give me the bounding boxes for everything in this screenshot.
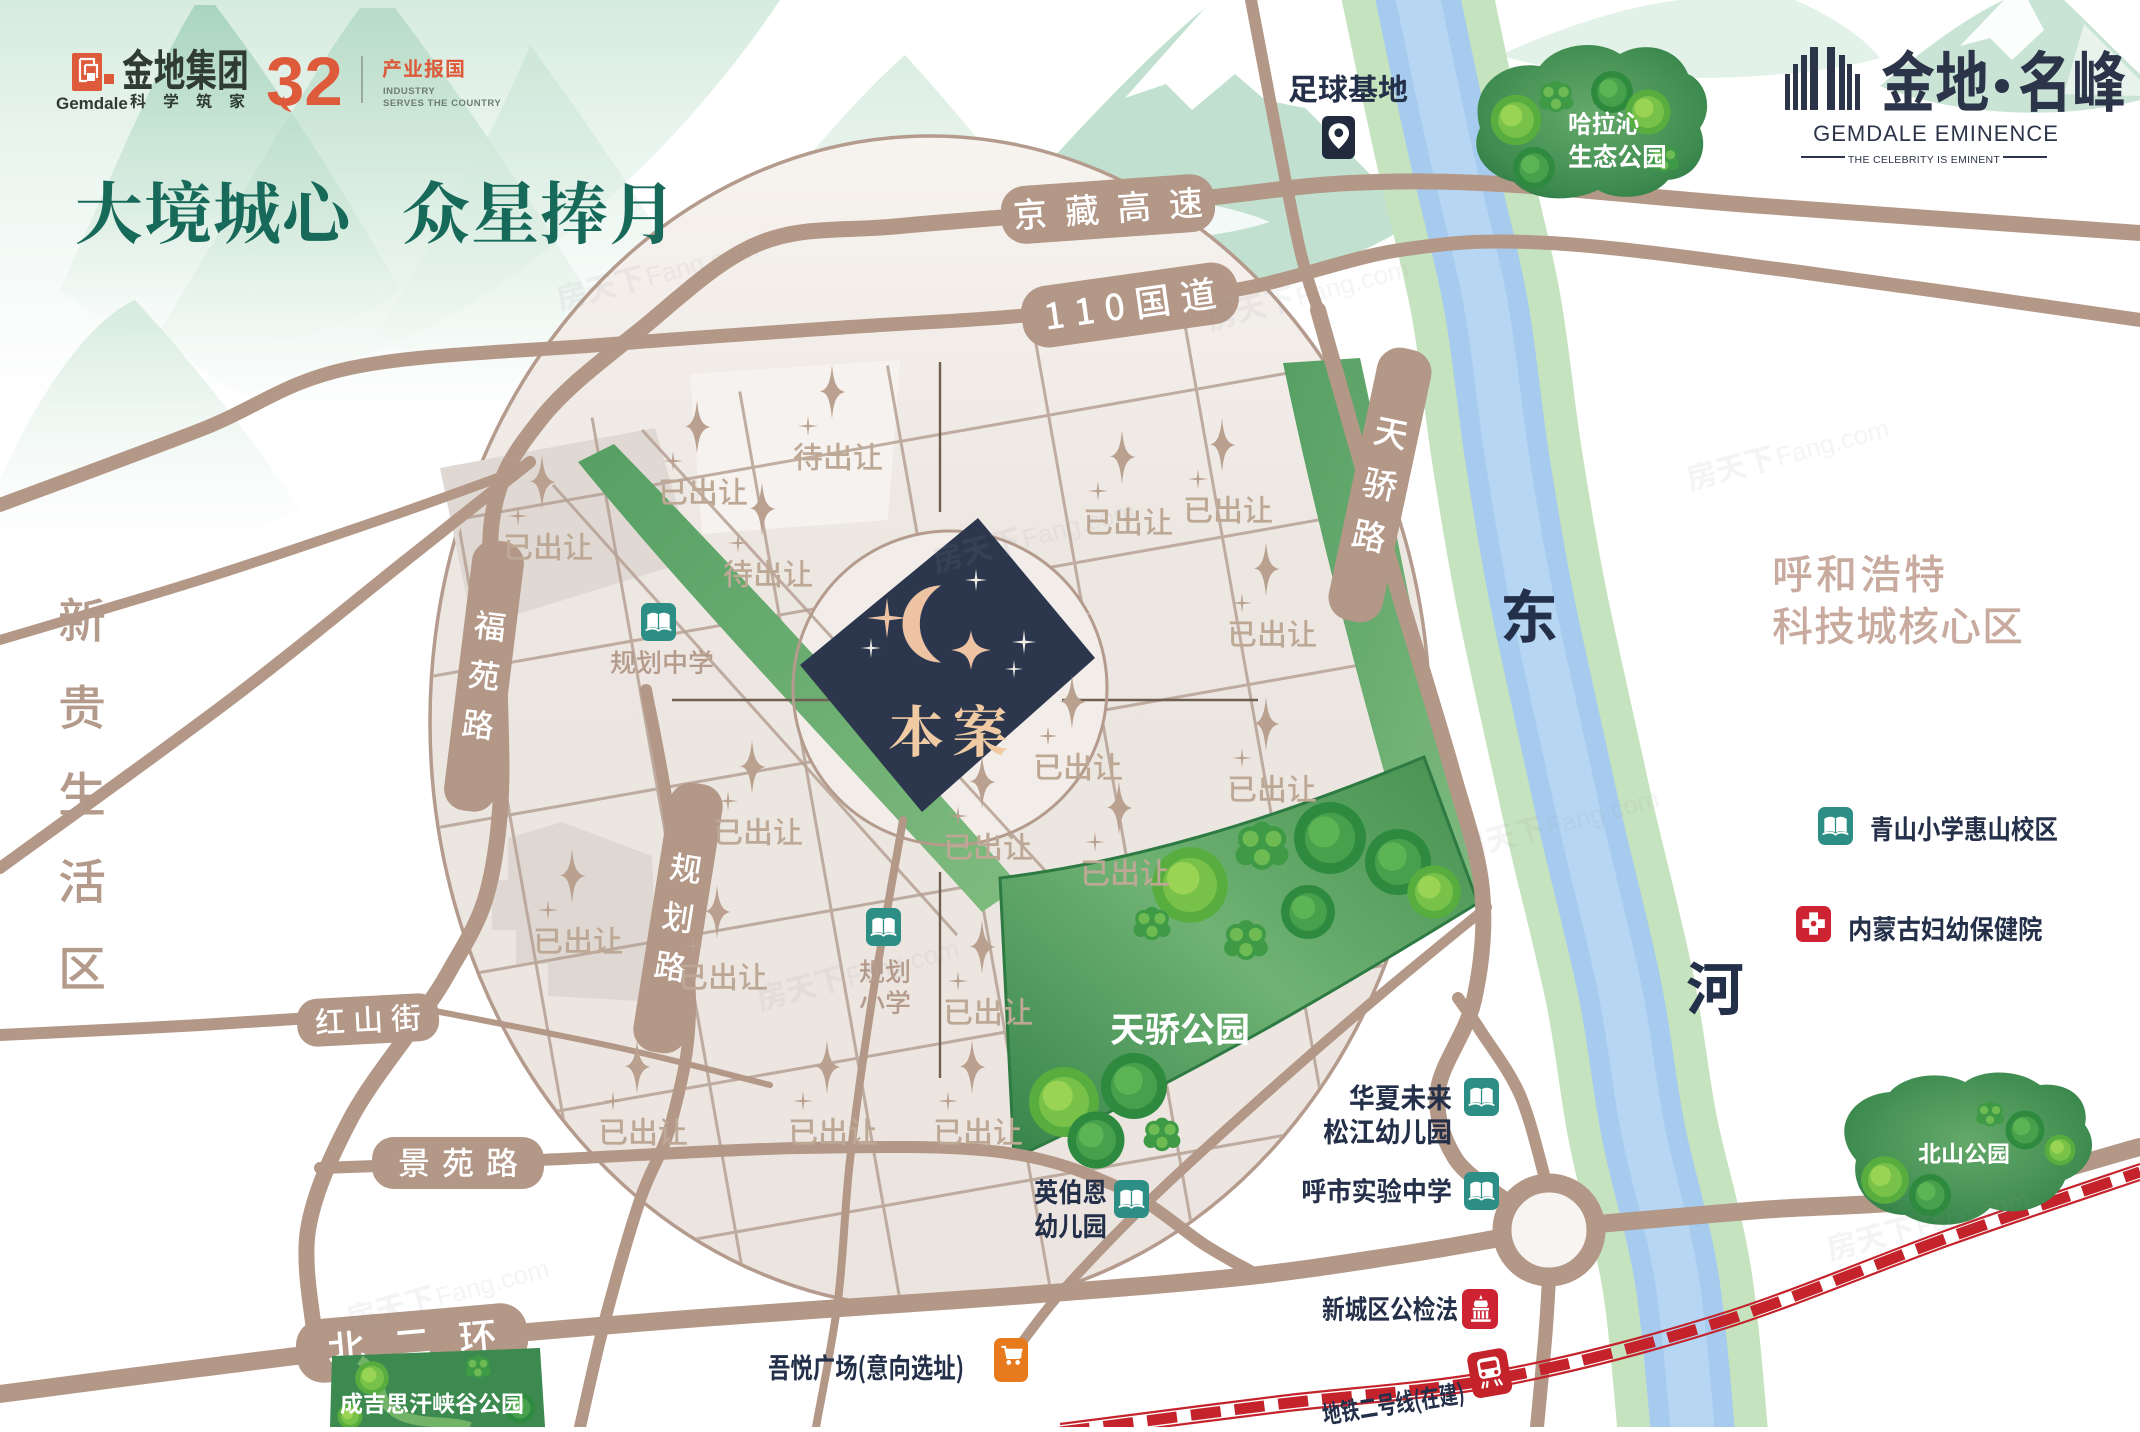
svg-text:Gemdale: Gemdale	[56, 94, 128, 113]
svg-text:SERVES THE COUNTRY: SERVES THE COUNTRY	[383, 98, 501, 109]
svg-text:32: 32	[266, 43, 343, 120]
svg-text:THE CELEBRITY IS EMINENT: THE CELEBRITY IS EMINENT	[1848, 154, 2001, 166]
svg-text:INDUSTRY: INDUSTRY	[383, 86, 435, 97]
svg-text:GEMDALE EMINENCE: GEMDALE EMINENCE	[1813, 121, 2059, 146]
